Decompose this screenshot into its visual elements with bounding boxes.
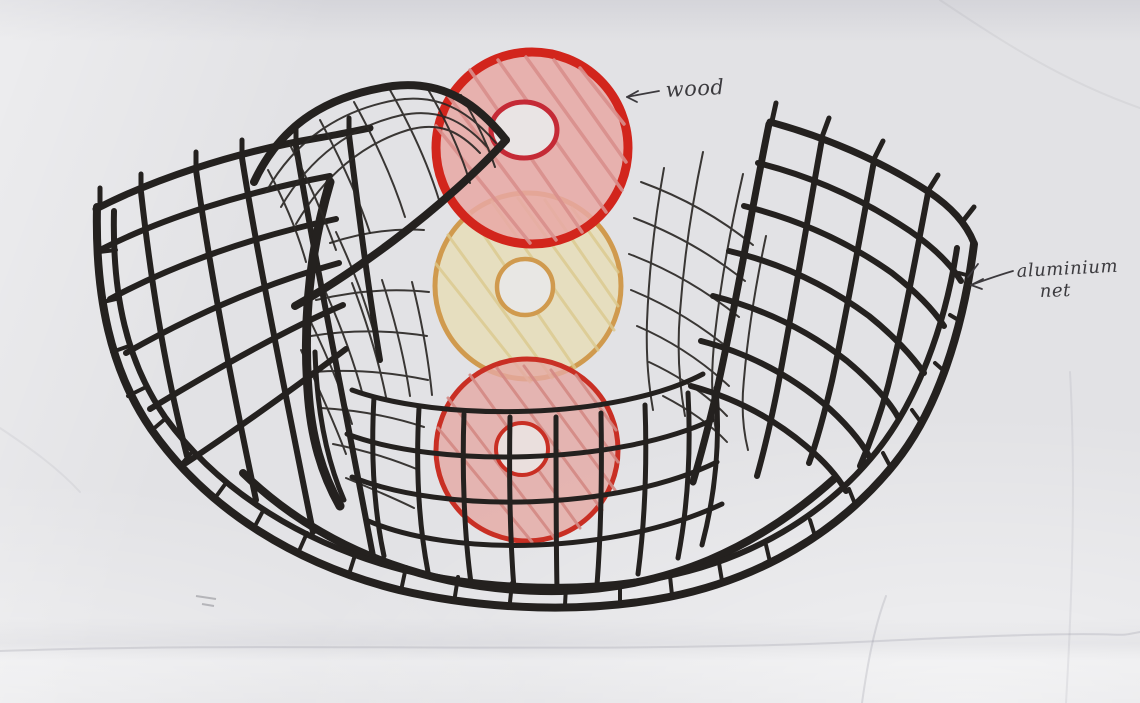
annotation-aluminium-net: aluminium net (968, 256, 1119, 302)
top-wood-disc (436, 52, 628, 244)
annotation-wood: wood (627, 75, 725, 102)
wood-label: wood (665, 75, 725, 102)
aluminium-net-arrow (968, 264, 1013, 289)
middle-disc-hole (497, 259, 553, 315)
sketch-drawing: wood aluminium net (0, 0, 1140, 703)
wood-arrow (627, 91, 659, 102)
bottom-disc-hole (496, 423, 548, 475)
aluminium-net-label-line1: aluminium (1016, 256, 1118, 282)
pencil-smudge (196, 596, 216, 606)
right-net-wing (691, 103, 974, 491)
paper-photo: wood aluminium net (0, 0, 1140, 703)
aluminium-net-label-line2: net (1039, 280, 1071, 302)
